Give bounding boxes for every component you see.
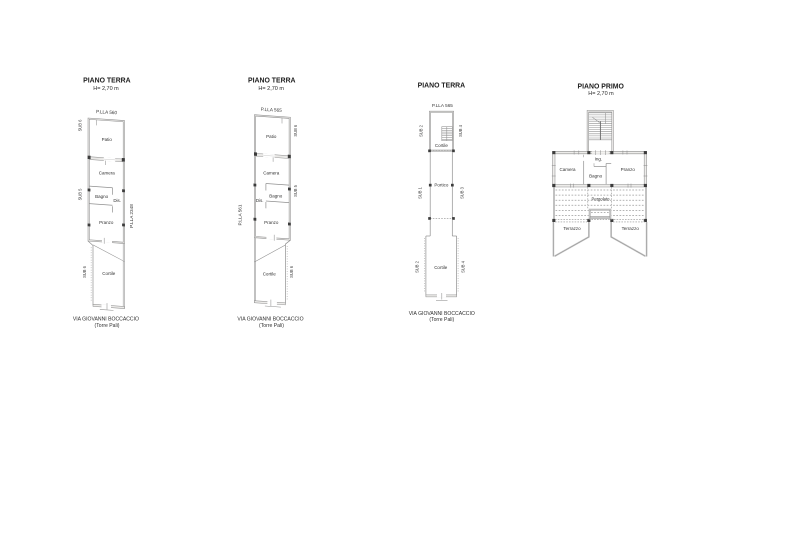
svg-text:SUB 5: SUB 5 bbox=[293, 184, 298, 197]
svg-text:SUB 2: SUB 2 bbox=[418, 124, 423, 137]
svg-text:SUB 6: SUB 6 bbox=[82, 265, 87, 278]
svg-text:SUB 3: SUB 3 bbox=[459, 186, 464, 199]
svg-text:(Torre Pali): (Torre Pali) bbox=[429, 317, 454, 323]
svg-text:PIANO PRIMO: PIANO PRIMO bbox=[578, 84, 625, 91]
svg-text:Bagno: Bagno bbox=[589, 173, 603, 178]
svg-text:Cortile: Cortile bbox=[435, 143, 449, 148]
svg-text:PIANO TERRA: PIANO TERRA bbox=[83, 78, 130, 85]
svg-text:PIANO TERRA: PIANO TERRA bbox=[248, 78, 295, 85]
svg-text:Pergolato: Pergolato bbox=[592, 196, 611, 201]
svg-text:P.LLA 2348: P.LLA 2348 bbox=[129, 204, 134, 228]
svg-text:SUB 2: SUB 2 bbox=[415, 260, 420, 273]
svg-text:Cortile: Cortile bbox=[102, 271, 116, 276]
svg-text:Bagno: Bagno bbox=[95, 194, 109, 199]
svg-text:Ing.: Ing. bbox=[595, 157, 603, 162]
svg-text:Patio: Patio bbox=[266, 134, 277, 139]
svg-text:Dis.: Dis. bbox=[256, 198, 264, 203]
svg-text:Pranzo: Pranzo bbox=[621, 167, 636, 172]
svg-text:Camera: Camera bbox=[99, 171, 116, 176]
svg-text:SUB 6: SUB 6 bbox=[78, 119, 83, 132]
svg-text:Terrazzo: Terrazzo bbox=[622, 226, 640, 231]
svg-text:SUB 5: SUB 5 bbox=[77, 188, 82, 201]
svg-text:Dis.: Dis. bbox=[113, 198, 121, 203]
svg-text:Bagno: Bagno bbox=[269, 194, 283, 199]
svg-text:H= 2,70 m: H= 2,70 m bbox=[93, 86, 119, 92]
svg-text:P.LLA 565: P.LLA 565 bbox=[432, 103, 453, 108]
svg-text:Pranzo: Pranzo bbox=[264, 220, 279, 225]
svg-text:H= 2,70 m: H= 2,70 m bbox=[258, 86, 284, 92]
svg-text:Portico: Portico bbox=[434, 183, 449, 188]
svg-text:H= 2,70 m: H= 2,70 m bbox=[588, 91, 614, 97]
svg-text:Pranzo: Pranzo bbox=[99, 220, 114, 225]
svg-text:PIANO TERRA: PIANO TERRA bbox=[418, 82, 465, 89]
svg-text:SUB 4: SUB 4 bbox=[461, 260, 466, 273]
svg-text:Camera: Camera bbox=[559, 167, 576, 172]
svg-text:Camera: Camera bbox=[263, 170, 280, 175]
svg-text:(Torre Pali): (Torre Pali) bbox=[95, 323, 120, 329]
svg-text:Cortile: Cortile bbox=[434, 265, 448, 270]
svg-text:Patio: Patio bbox=[102, 137, 113, 142]
svg-text:VIA GIOVANNI BOCCACCIO: VIA GIOVANNI BOCCACCIO bbox=[237, 317, 303, 323]
svg-text:SUB 1: SUB 1 bbox=[418, 186, 423, 199]
svg-text:VIA GIOVANNI BOCCACCIO: VIA GIOVANNI BOCCACCIO bbox=[409, 311, 475, 317]
svg-text:Terrazzo: Terrazzo bbox=[563, 226, 581, 231]
svg-text:VIA GIOVANNI BOCCACCIO: VIA GIOVANNI BOCCACCIO bbox=[73, 317, 139, 323]
svg-text:SUB 6: SUB 6 bbox=[293, 124, 298, 137]
svg-text:P.LLA 561: P.LLA 561 bbox=[238, 204, 243, 225]
svg-text:(Torre Pali): (Torre Pali) bbox=[259, 323, 284, 329]
svg-text:SUB 6: SUB 6 bbox=[289, 265, 294, 278]
svg-text:SUB 4: SUB 4 bbox=[458, 124, 463, 137]
svg-text:Cortile: Cortile bbox=[263, 272, 277, 277]
